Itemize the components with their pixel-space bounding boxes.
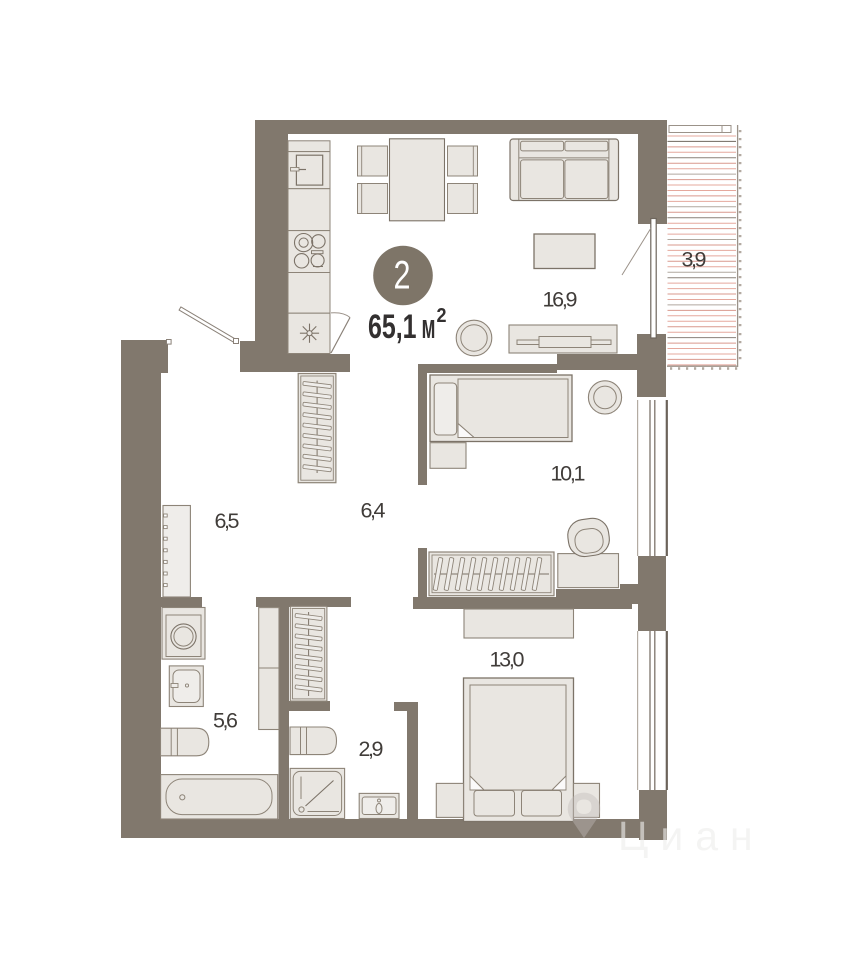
svg-text:м: м	[422, 308, 436, 346]
svg-text:65,1: 65,1	[368, 308, 417, 346]
svg-text:6,4: 6,4	[361, 499, 386, 523]
svg-text:5,6: 5,6	[213, 709, 238, 733]
svg-text:2,9: 2,9	[359, 737, 384, 761]
svg-text:13,0: 13,0	[490, 648, 525, 672]
svg-text:16,9: 16,9	[543, 288, 578, 312]
svg-text:10,1: 10,1	[551, 462, 586, 486]
svg-text:2: 2	[437, 305, 447, 327]
svg-text:2: 2	[394, 254, 411, 298]
svg-text:Циан: Циан	[618, 813, 765, 859]
svg-text:6,5: 6,5	[215, 509, 240, 533]
svg-text:3,9: 3,9	[682, 248, 707, 272]
